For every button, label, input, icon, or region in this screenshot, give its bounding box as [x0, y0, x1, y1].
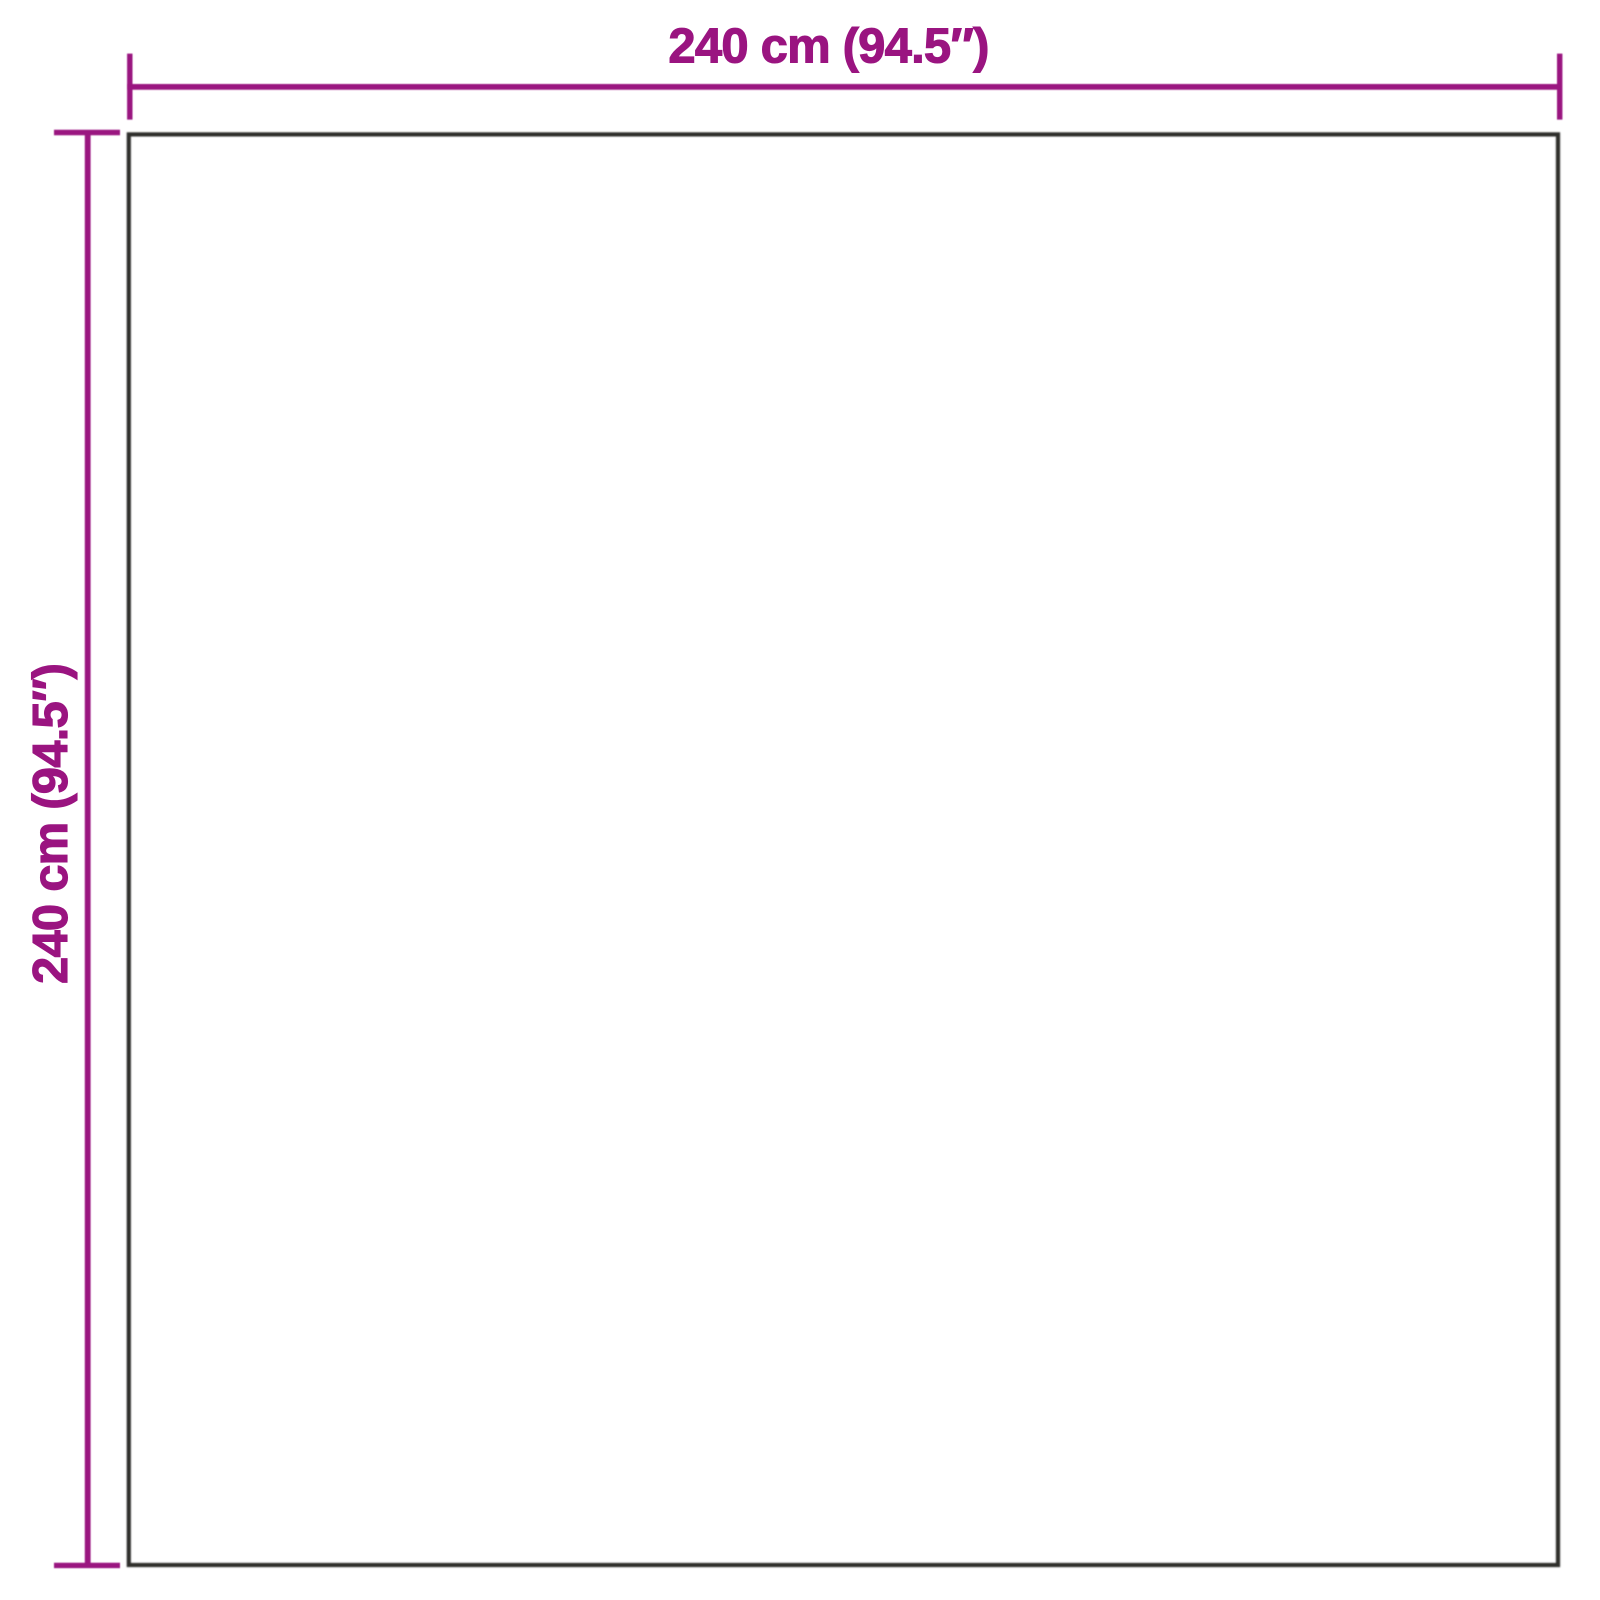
svg-text:240 cm (94.5″): 240 cm (94.5″)	[24, 663, 78, 984]
svg-text:240 cm (94.5″): 240 cm (94.5″)	[668, 20, 989, 74]
